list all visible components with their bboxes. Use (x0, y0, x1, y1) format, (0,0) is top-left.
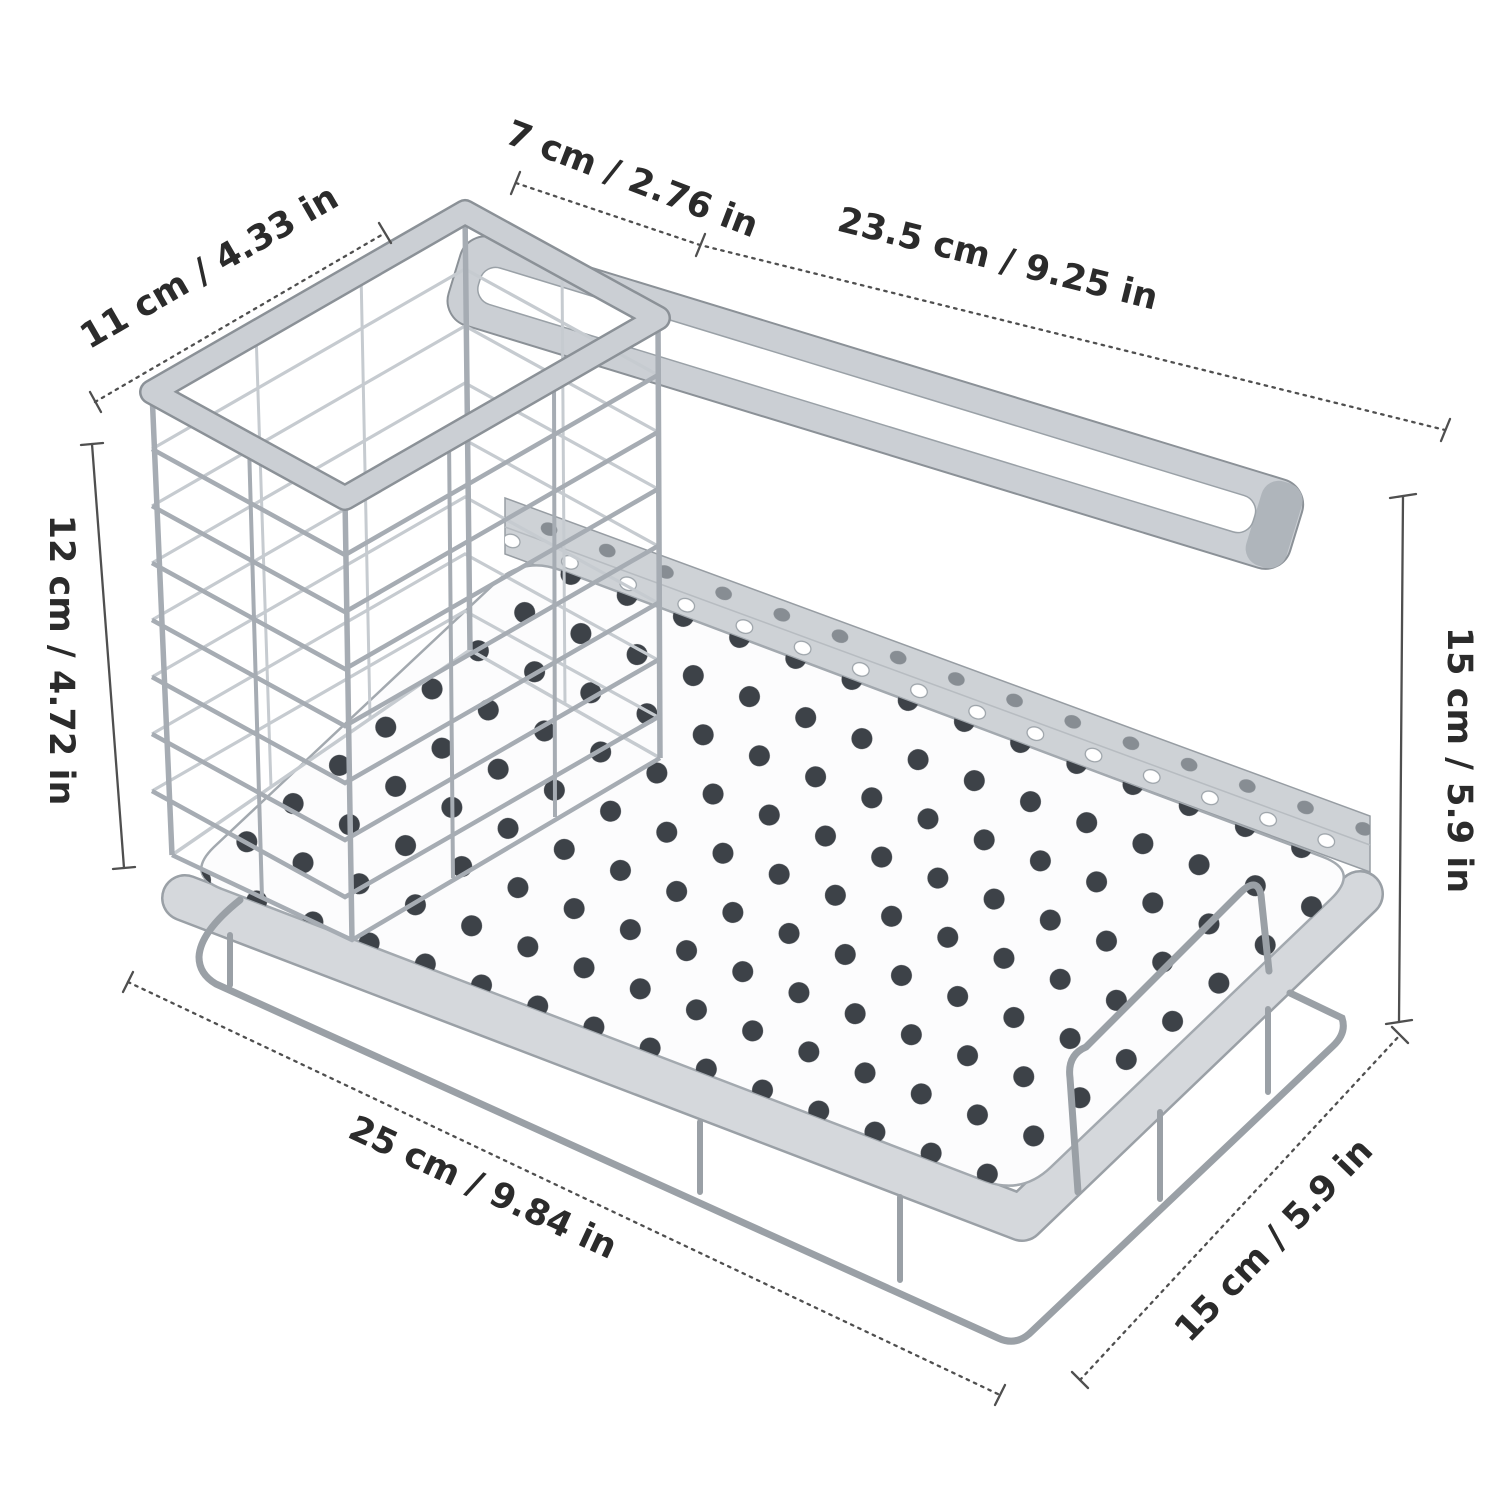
dimension-base-length-label: 25 cm / 9.84 in (342, 1108, 622, 1267)
dimension-basket-height-label: 12 cm / 4.72 in (41, 515, 81, 806)
dimension-overall-height: 15 cm / 5.9 in (1386, 494, 1479, 1024)
diagram-canvas: 11 cm / 4.33 in 12 cm / 4.72 in 7 cm / 2… (0, 0, 1500, 1500)
product-illustration (152, 212, 1370, 1341)
product-dimension-diagram: 11 cm / 4.33 in 12 cm / 4.72 in 7 cm / 2… (0, 0, 1500, 1500)
dimension-basket-depth-label: 11 cm / 4.33 in (74, 177, 346, 357)
dimension-basket-height: 12 cm / 4.72 in (41, 443, 135, 869)
dimension-overall-height-label: 15 cm / 5.9 in (1439, 627, 1479, 893)
dimension-bar-length-label: 23.5 cm / 9.25 in (834, 200, 1162, 318)
dimension-overall-height-line (1399, 496, 1403, 1022)
dimension-basket-width-label: 7 cm / 2.76 in (500, 113, 763, 246)
dimension-base-depth-label: 15 cm / 5.9 in (1167, 1131, 1381, 1350)
dimension-basket-height-line (92, 444, 124, 868)
